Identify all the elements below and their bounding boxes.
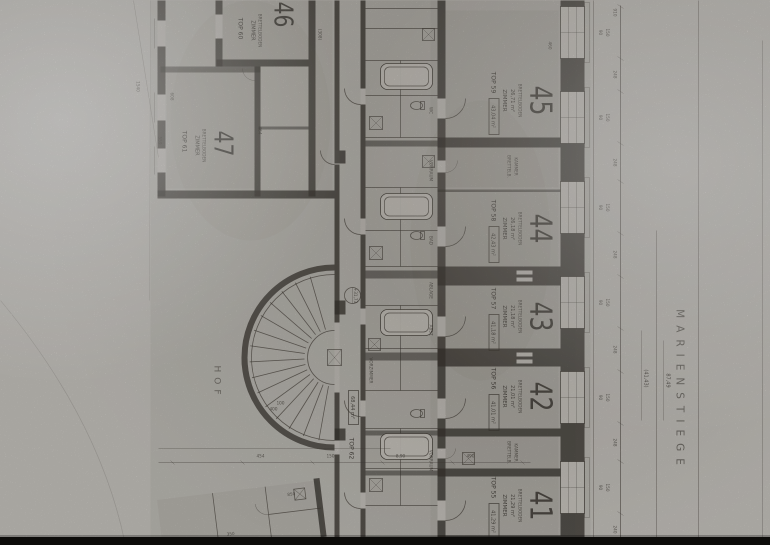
window (560, 371, 584, 423)
apartment-floor: BRETTELBODEN (517, 379, 522, 413)
room-ablage: ABLAGE (428, 282, 433, 299)
room-vorraum: VORRAUM (428, 159, 433, 181)
apartment-number: 41 (522, 490, 557, 520)
apartment-number: 44 (522, 213, 557, 243)
facade-pier (560, 233, 584, 276)
room-vorzimmer: VORZIMMER (368, 357, 373, 383)
dim-tick (617, 274, 623, 330)
apartment-room: ZIMMER (501, 305, 507, 327)
apartment-row: 460 45BRETTELBODEN26,71 m²ZIMMERTOP 5943… (437, 0, 560, 545)
facade-pier (560, 328, 584, 371)
dim-window-height: 90 (598, 114, 603, 120)
apartment-top: TOP 57 (489, 286, 496, 309)
apartment-number: 42 (522, 381, 557, 411)
dim-window-height: 90 (598, 299, 603, 305)
kammer-floor: BRETTELB. (506, 441, 511, 464)
dim-window-width: 150 (605, 298, 610, 306)
room-dim: 608 (169, 92, 174, 100)
apartment-room-area: 26,71 m² (509, 89, 515, 112)
apartment-total-area: 43,04 m² (489, 105, 495, 128)
paper-folds: 1540 (0, 0, 158, 545)
apartment-room: ZIMMER (249, 20, 255, 41)
apartment-number: 46 (267, 1, 297, 27)
courtyard-label: HOF (211, 365, 221, 399)
apartment-room-area: 21,01 m² (509, 385, 515, 408)
apartment-room: ZIMMER (501, 217, 507, 239)
dim-tick (617, 459, 623, 515)
bathtub (380, 433, 432, 459)
window (560, 276, 584, 328)
facade-pier (560, 423, 584, 461)
apartment-total-area: 41,29 m² (489, 510, 495, 533)
apartment-floor: BRETTELBODEN (517, 211, 522, 245)
window (560, 6, 584, 58)
dim-window-width: 150 (605, 393, 610, 401)
apartment-number: 45 (522, 85, 557, 115)
kammer-name: KAMMER (513, 157, 518, 175)
dim-window-width: 150 (605, 483, 610, 491)
dim-tick (617, 369, 623, 425)
room-dim: 464 (257, 126, 262, 134)
courtyard-dim: 850 (286, 491, 295, 497)
bathtub (380, 309, 432, 335)
dim-pier: 248 (612, 438, 617, 446)
level-value: +31,73 (353, 287, 358, 303)
courtyard-dim: 8,90 (395, 453, 405, 458)
window (560, 91, 584, 143)
dimension-chain: 87,49 (41,43) 910 1509015090150901509015… (598, 4, 671, 545)
dim-pier-left: 910 (612, 8, 617, 16)
fold-dim: 1540 (135, 81, 140, 92)
courtyard-dim: 454 (256, 453, 264, 458)
apartment-room: ZIMMER (501, 385, 507, 407)
bathtub (380, 193, 432, 219)
apartment-top: TOP 58 (489, 198, 496, 221)
apartment-floor: BRETTELBODEN (517, 83, 522, 117)
dim-tick (617, 89, 623, 145)
apartment-top: TOP 56 (489, 366, 496, 389)
street-zone: MARIENSTIEGE (656, 0, 762, 545)
room-vorraum: VORRAUM (428, 449, 433, 471)
apartment-floor: BRETTELBODEN (517, 299, 522, 333)
dim-window-height: 90 (598, 484, 603, 490)
room-abst: ABST. (428, 324, 433, 336)
apartment-room-area: 21,29 m² (509, 494, 515, 517)
dim-total-paren: (41,43) (642, 369, 648, 387)
apartment-total-area: 41,18 m² (489, 321, 495, 344)
dim-window-height: 90 (598, 204, 603, 210)
plan-rotated-sheet: MARIENSTIEGE 87,49 (41,43) 910 150901509… (0, 0, 770, 545)
apartment-top: TOP 59 (489, 70, 496, 93)
plan-drawing: MARIENSTIEGE 87,49 (41,43) 910 150901509… (0, 0, 770, 545)
apartment-top: TOP 55 (489, 475, 496, 498)
dim-pier: 248 (612, 158, 617, 166)
street-name-label: MARIENSTIEGE (673, 309, 685, 472)
dim-pier: 248 (612, 70, 617, 78)
facade-pier (560, 143, 584, 181)
dim-pier: 248 (612, 250, 617, 258)
apartment-room: ZIMMER (501, 494, 507, 516)
dim-window-width: 150 (605, 113, 610, 121)
dim-pier-right: 240 (612, 525, 617, 533)
apartment-top: TOP 61 (180, 129, 187, 152)
dim-pier: 248 (612, 345, 617, 353)
bathtub (380, 63, 432, 89)
dim-total: 87,49 (664, 373, 670, 387)
facade-pier (560, 0, 584, 6)
facade-pier (560, 58, 584, 91)
dim-window-height: 90 (598, 29, 603, 35)
courtyard-dim: 150 (326, 453, 334, 458)
floor-plan-scan: MARIENSTIEGE 87,49 (41,43) 910 150901509… (0, 0, 770, 545)
courtyard-dim: 490 (466, 453, 474, 458)
apartment-total-area: 42,43 m² (489, 233, 495, 256)
apartment-total-area: 41,01 m² (489, 401, 495, 424)
apartment-floor: BRETTELBODEN (201, 128, 206, 162)
stair-dim-1: 100 (276, 400, 284, 405)
apartment-floor: BRETTELBODEN (517, 488, 522, 522)
window (560, 181, 584, 233)
spine-wall (437, 0, 445, 545)
window (560, 461, 584, 513)
room-wc: WC (428, 106, 433, 113)
dim-window-width: 150 (605, 28, 610, 36)
corridor-unit-area: 68,44 m² (349, 396, 355, 419)
kammer-name: KAMMER (513, 443, 518, 461)
dim-window-width: 150 (605, 203, 610, 211)
dim-tick (617, 4, 623, 60)
room-dim: 559 (157, 136, 162, 144)
apartment-room: ZIMMER (501, 89, 507, 111)
apartment-number: 47 (207, 130, 237, 156)
apartment-room: ZIMMER (193, 135, 199, 156)
kammer-floor: BRETTELB. (506, 155, 511, 178)
room-bad: BAD (428, 236, 433, 245)
scanner-edge-bar (0, 537, 770, 545)
dim-window-height: 90 (598, 394, 603, 400)
apartment-room-area: 21,18 m² (509, 305, 515, 328)
room-dim: (308) (317, 28, 322, 40)
apartment-floor: BRETTELBODEN (257, 13, 262, 47)
dim-tick (617, 179, 623, 235)
room-dim: 460 (547, 41, 552, 49)
apartment-top: TOP 60 (236, 16, 243, 39)
apartment-room-area: 26,18 m² (509, 217, 515, 240)
apartment-number: 43 (522, 301, 557, 331)
corridor-unit-top: TOP 62 (347, 436, 354, 459)
stair-dim-2: 400 (269, 406, 277, 411)
